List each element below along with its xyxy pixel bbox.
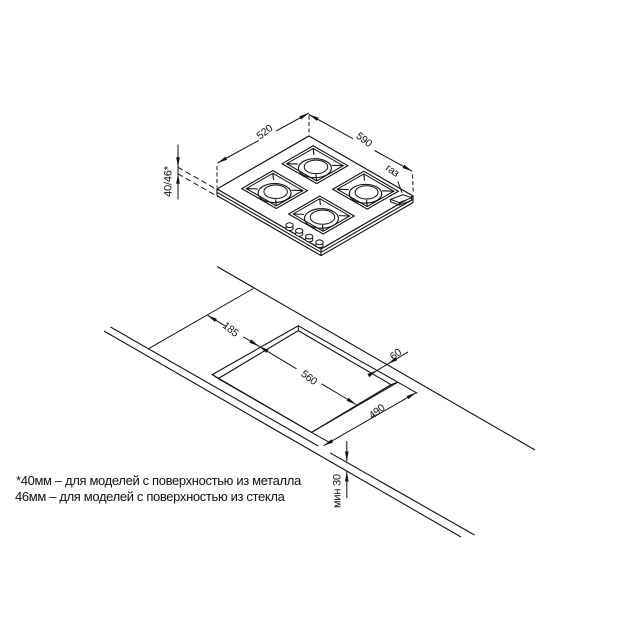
- svg-text:*40мм – для моделей с поверхно: *40мм – для моделей с поверхностью из ме…: [16, 473, 302, 488]
- svg-text:40/46*: 40/46*: [162, 165, 174, 197]
- svg-text:мин 30: мин 30: [331, 474, 343, 508]
- svg-text:46мм – для моделей с поверхнос: 46мм – для моделей с поверхностью из сте…: [15, 489, 286, 504]
